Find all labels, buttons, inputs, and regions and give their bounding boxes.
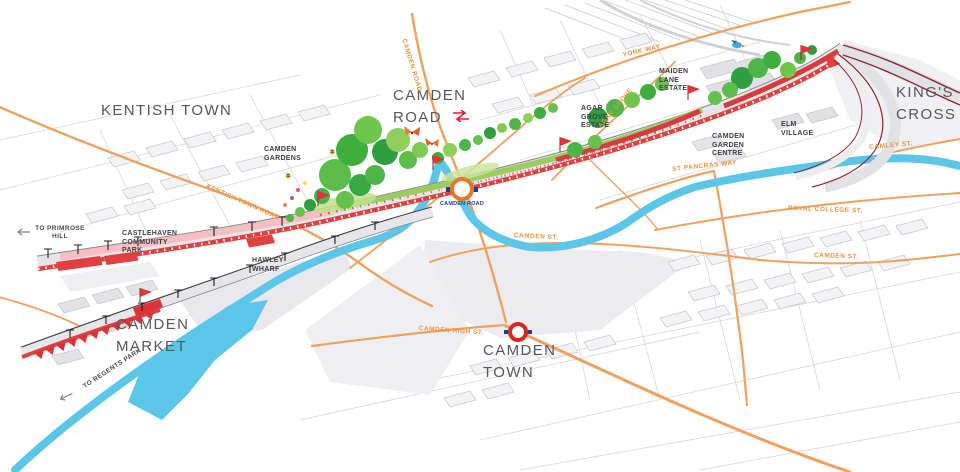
district-label-camden-market: CAMDEN MARKET [116,314,200,358]
butterfly-icon [425,138,439,147]
direction-label-to-primrose-hill: TO PRIMROSE HILL [34,225,86,241]
arrow-left-icon [17,228,31,236]
district-label-camden-road: CAMDEN ROAD [393,85,465,129]
national-rail-icon [452,110,470,122]
place-label-elm-village: ELM VILLAGE [781,121,811,138]
bee-icon [329,148,335,155]
place-label-camden-garden-centre: CAMDEN GARDEN CENTRE [712,133,746,159]
place-label-hawley-wharf: HAWLEY WHARF [252,257,282,274]
street-label-camden-st-east: CAMDEN ST. [814,252,859,261]
district-label-camden-town: CAMDEN TOWN [483,340,559,384]
overground-roundel-icon [446,177,478,201]
rail-yard-hatching [545,0,758,45]
place-label-castlehaven-community-park: CASTLEHAVEN COMMUNITY PARK [122,230,174,256]
district-label-kentish-town: KENTISH TOWN [101,100,232,122]
bird-icon [731,40,746,48]
bee-icon [285,172,291,179]
station-label-camden-road: CAMDEN ROAD [439,201,485,208]
place-label-camden-gardens: CAMDEN GARDENS [264,146,298,163]
camden-highline-map: KENTISH TOWN CAMDEN ROAD KING'S CROSS CA… [0,0,960,472]
underground-roundel-icon [504,322,532,342]
place-label-maiden-lane-estate: MAIDEN LANE ESTATE [659,68,705,94]
district-label-kings-cross: KING'S CROSS [896,82,960,126]
